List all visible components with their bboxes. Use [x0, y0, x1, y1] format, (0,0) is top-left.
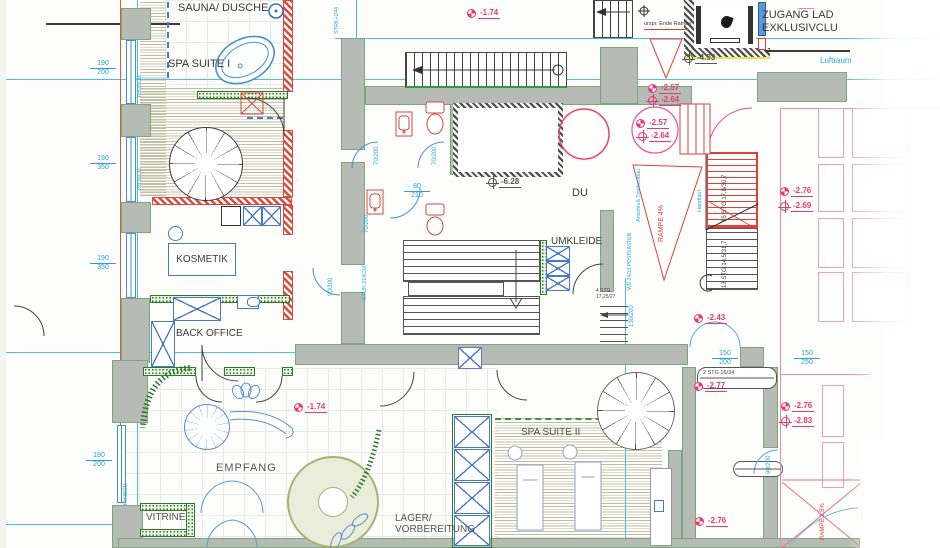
sink-icon	[367, 190, 383, 214]
stair-cut-line	[706, 200, 758, 230]
elevation-marker: -2.69	[780, 201, 813, 212]
toilet-icon	[426, 204, 444, 235]
level-icon	[694, 382, 703, 391]
kosmetik-table: KOSMETIK	[168, 243, 236, 276]
shower-head-dot	[275, 10, 278, 13]
elevation-marker: -2.76	[780, 186, 813, 197]
elevation-marker: -1.74	[467, 8, 500, 19]
marker-value: -2.69	[791, 201, 813, 212]
elevation-marker: -1.74	[294, 402, 327, 413]
dimension: 190350	[90, 155, 116, 172]
massage-table	[508, 446, 543, 530]
dim-top: 190	[90, 60, 116, 69]
pool-circle	[559, 109, 609, 159]
door-dim: 70/200	[432, 147, 438, 165]
room-label-backoffice: BACK OFFICE	[176, 328, 243, 339]
marker-value: -2.64	[649, 131, 671, 142]
label-ph: PH 85CM	[138, 75, 144, 97]
plant-icon	[230, 383, 262, 401]
dim-top: 150	[794, 350, 820, 359]
shower-tray-icon	[241, 93, 263, 114]
room-label-umkleide: UMKLEIDE	[551, 236, 602, 247]
door-arc	[14, 306, 44, 336]
stair-label-2stg: 2 STG 16/34	[703, 370, 734, 376]
dim-top: 150	[712, 350, 738, 359]
marker-value: -2.64	[659, 95, 681, 106]
marker-value: -2.57	[647, 118, 669, 129]
dimension: 190350	[90, 255, 116, 272]
label-handlauf: Handlauf	[697, 190, 703, 212]
dimension: 150250	[794, 350, 820, 367]
curved-drywall	[352, 430, 379, 497]
label-stuk: STUK 215CM	[362, 266, 368, 300]
level-icon	[695, 517, 704, 526]
label-ph: PH 85CM	[124, 483, 130, 505]
elevation-marker: -2.76	[781, 401, 814, 412]
label-anschluss: Anschluß Trockenbau	[636, 169, 642, 222]
stair-cut-line	[706, 204, 758, 230]
marker-value: -2.83	[792, 416, 814, 427]
level-icon	[781, 402, 790, 411]
room-label-spa2: SPA SUITE II	[521, 427, 580, 438]
dim-bottom: 210	[411, 192, 423, 199]
marker-value: -2.76	[792, 401, 814, 412]
dim-top: 190	[86, 452, 112, 461]
level-icon	[467, 9, 476, 18]
label-strk: STRK+244	[334, 7, 340, 34]
dim-top: 190	[90, 155, 116, 164]
level-icon	[694, 314, 703, 323]
reception-desk	[230, 419, 286, 434]
marker-value: -6.28	[499, 177, 521, 188]
room-label-kosmetik: KOSMETIK	[176, 254, 228, 265]
zugang-line2: EXKLUSIVCLU	[762, 22, 838, 34]
door-dim: 90/200	[328, 278, 334, 296]
curtain-icon	[232, 481, 263, 513]
stair-arrowhead	[596, 8, 606, 16]
stair-arrowhead	[412, 66, 422, 74]
lift-platform	[680, 104, 710, 154]
dim-bottom: 200	[719, 359, 731, 366]
level-icon	[648, 84, 657, 93]
ramp-arrow	[650, 39, 682, 78]
sink-icon	[396, 112, 412, 136]
lager-line2: VORBEREITUNG	[395, 524, 475, 535]
zone-label-zugang: ZUGANG LAD EXKLUSIVCLU	[762, 9, 838, 35]
curtain-icon	[201, 481, 232, 513]
cross-icon	[488, 178, 497, 187]
door-arc	[418, 142, 444, 168]
door-dim: 70/200	[364, 215, 370, 233]
marker-value: -1.74	[478, 8, 500, 19]
zugang-line1: ZUGANG LAD	[762, 9, 834, 21]
curtain-icon	[207, 520, 233, 547]
elevation-marker: -4.93	[684, 53, 717, 64]
door-arc	[380, 372, 414, 406]
marker-value: -1.74	[305, 402, 327, 413]
dim-bottom: 350	[97, 164, 109, 171]
dimension: 150200	[712, 350, 738, 367]
lager-line1: LAGER/	[395, 513, 432, 524]
dim-bottom: 350	[97, 264, 109, 271]
level-icon	[294, 403, 303, 412]
note-ende-rampe: urspr. Ende Rampe	[644, 21, 691, 27]
elevation-marker: -6.28	[488, 177, 521, 188]
dim-top: 80	[404, 183, 430, 192]
room-label-sauna: SAUNA/ DUSCHE	[178, 2, 268, 14]
room-label-empfang: EMPFANG	[216, 462, 277, 474]
elevation-marker: -2.43	[694, 313, 727, 324]
marker-value: -2.76	[791, 186, 813, 197]
elevation-marker: -2.64	[638, 131, 671, 142]
label-luftraum: Luftraum	[820, 57, 852, 66]
door-arc	[690, 322, 715, 347]
room-label-lager: LAGER/ VORBEREITUNG	[395, 513, 475, 535]
label-ph: PH 85CM	[138, 168, 144, 190]
note-underline	[644, 29, 688, 30]
level-icon	[780, 187, 789, 196]
hand-icons	[329, 512, 370, 548]
curtain-icon	[233, 520, 257, 547]
cross-icon	[684, 54, 693, 63]
cross-icon	[780, 202, 789, 211]
cross-icon	[638, 132, 647, 141]
stair-label-13stg: 13 STG 14,5/31,7	[722, 241, 729, 288]
ramp-4pct	[633, 165, 702, 280]
elevation-marker: -2.64	[648, 95, 681, 106]
stair-label-15stg: 15 STG 17,8/30,7	[722, 175, 729, 222]
elevation-marker: -2.57	[636, 118, 669, 129]
elevation-marker: -2.57	[648, 83, 681, 94]
room-label-du: DU	[572, 187, 588, 199]
elevation-marker: -2.77	[694, 381, 727, 392]
elevation-marker: -2.76	[695, 516, 728, 527]
curved-drywall	[143, 368, 190, 428]
label-rampe4: RAMPE 4%	[658, 205, 666, 242]
door-dim: 130/200	[629, 305, 635, 327]
stair-4stg-l2: 17,25/27	[596, 294, 615, 300]
dim-bottom: 200	[93, 461, 105, 468]
floor-plan: SAUNA/ DUSCHE SPA SUITE I KOSMETIK BACK …	[0, 0, 940, 548]
label-rampe25: RAMPE 2,5%	[820, 503, 827, 540]
dimension: 190200	[86, 452, 112, 469]
door-arc	[497, 370, 527, 400]
door-dim: 70/200	[374, 147, 380, 165]
massage-table	[563, 445, 601, 530]
door-arc	[708, 108, 752, 152]
cross-icon	[781, 417, 790, 426]
door-arc	[202, 345, 238, 381]
stair-label-4stg: 4 STG 17,25/27	[596, 289, 615, 300]
dim-bottom: 200	[97, 69, 109, 76]
marker-value: -4.93	[695, 53, 717, 64]
stair-arrowhead	[600, 312, 608, 318]
dimension: 80210	[404, 183, 430, 200]
room-label-vitrine: VITRINE	[146, 512, 185, 523]
stool-icon	[168, 226, 183, 241]
elevation-marker: -2.83	[781, 416, 814, 427]
door-arc	[313, 268, 340, 295]
handrail-end	[700, 275, 712, 291]
reception-desk	[286, 428, 293, 438]
label-postkaesten: WD 24/13 POSTKÄSTEN	[628, 233, 634, 290]
door-arc	[196, 376, 222, 402]
cross-icon	[648, 96, 657, 105]
marker-value: -2.43	[705, 313, 727, 324]
marker-value: -2.77	[705, 381, 727, 392]
pool-circle	[632, 107, 678, 153]
door-dim: 90/200	[766, 456, 772, 474]
marker-value: -2.76	[706, 516, 728, 527]
dim-bottom: 250	[801, 359, 813, 366]
room-label-spa1: SPA SUITE I	[168, 58, 230, 70]
marker-value: -2.57	[659, 83, 681, 94]
toilet-icon	[426, 102, 444, 134]
door-arc	[715, 322, 740, 347]
dim-top: 190	[90, 255, 116, 264]
level-icon	[636, 119, 645, 128]
dimension: 190200	[90, 60, 116, 77]
